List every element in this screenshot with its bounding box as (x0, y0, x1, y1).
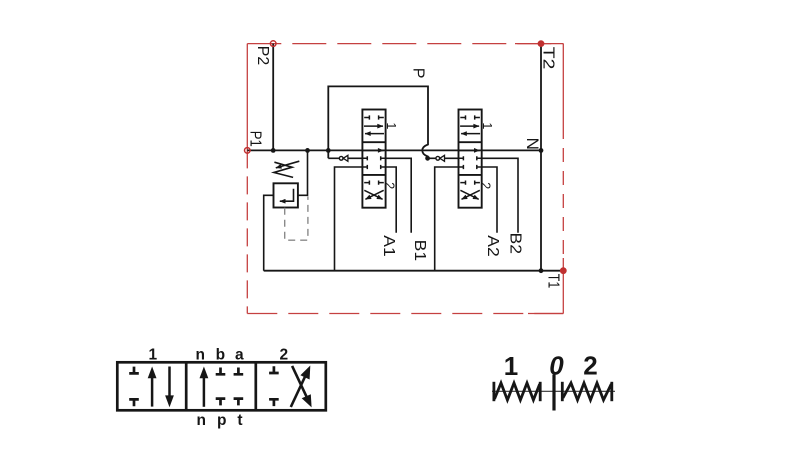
svg-text:1: 1 (504, 351, 518, 381)
svg-text:b: b (216, 346, 225, 363)
svg-text:T1: T1 (545, 274, 562, 289)
svg-text:a: a (235, 346, 244, 363)
svg-text:N: N (523, 138, 542, 150)
svg-text:t: t (237, 412, 242, 429)
svg-text:A1: A1 (380, 235, 397, 257)
svg-text:P2: P2 (254, 46, 271, 66)
svg-text:P: P (409, 68, 426, 79)
svg-text:A2: A2 (484, 235, 501, 257)
svg-text:1: 1 (480, 122, 494, 129)
svg-text:p: p (217, 412, 226, 429)
svg-text:1: 1 (384, 122, 398, 129)
svg-text:2: 2 (583, 351, 597, 381)
svg-text:n: n (195, 346, 204, 363)
svg-text:T2: T2 (539, 47, 556, 70)
svg-text:0: 0 (549, 351, 564, 381)
svg-text:2: 2 (383, 182, 397, 189)
svg-text:P1: P1 (246, 131, 263, 147)
svg-text:B1: B1 (411, 240, 428, 262)
svg-text:n: n (196, 412, 205, 429)
svg-text:2: 2 (279, 346, 288, 363)
svg-text:2: 2 (479, 182, 493, 189)
svg-text:B2: B2 (506, 233, 523, 255)
svg-text:1: 1 (148, 346, 157, 363)
